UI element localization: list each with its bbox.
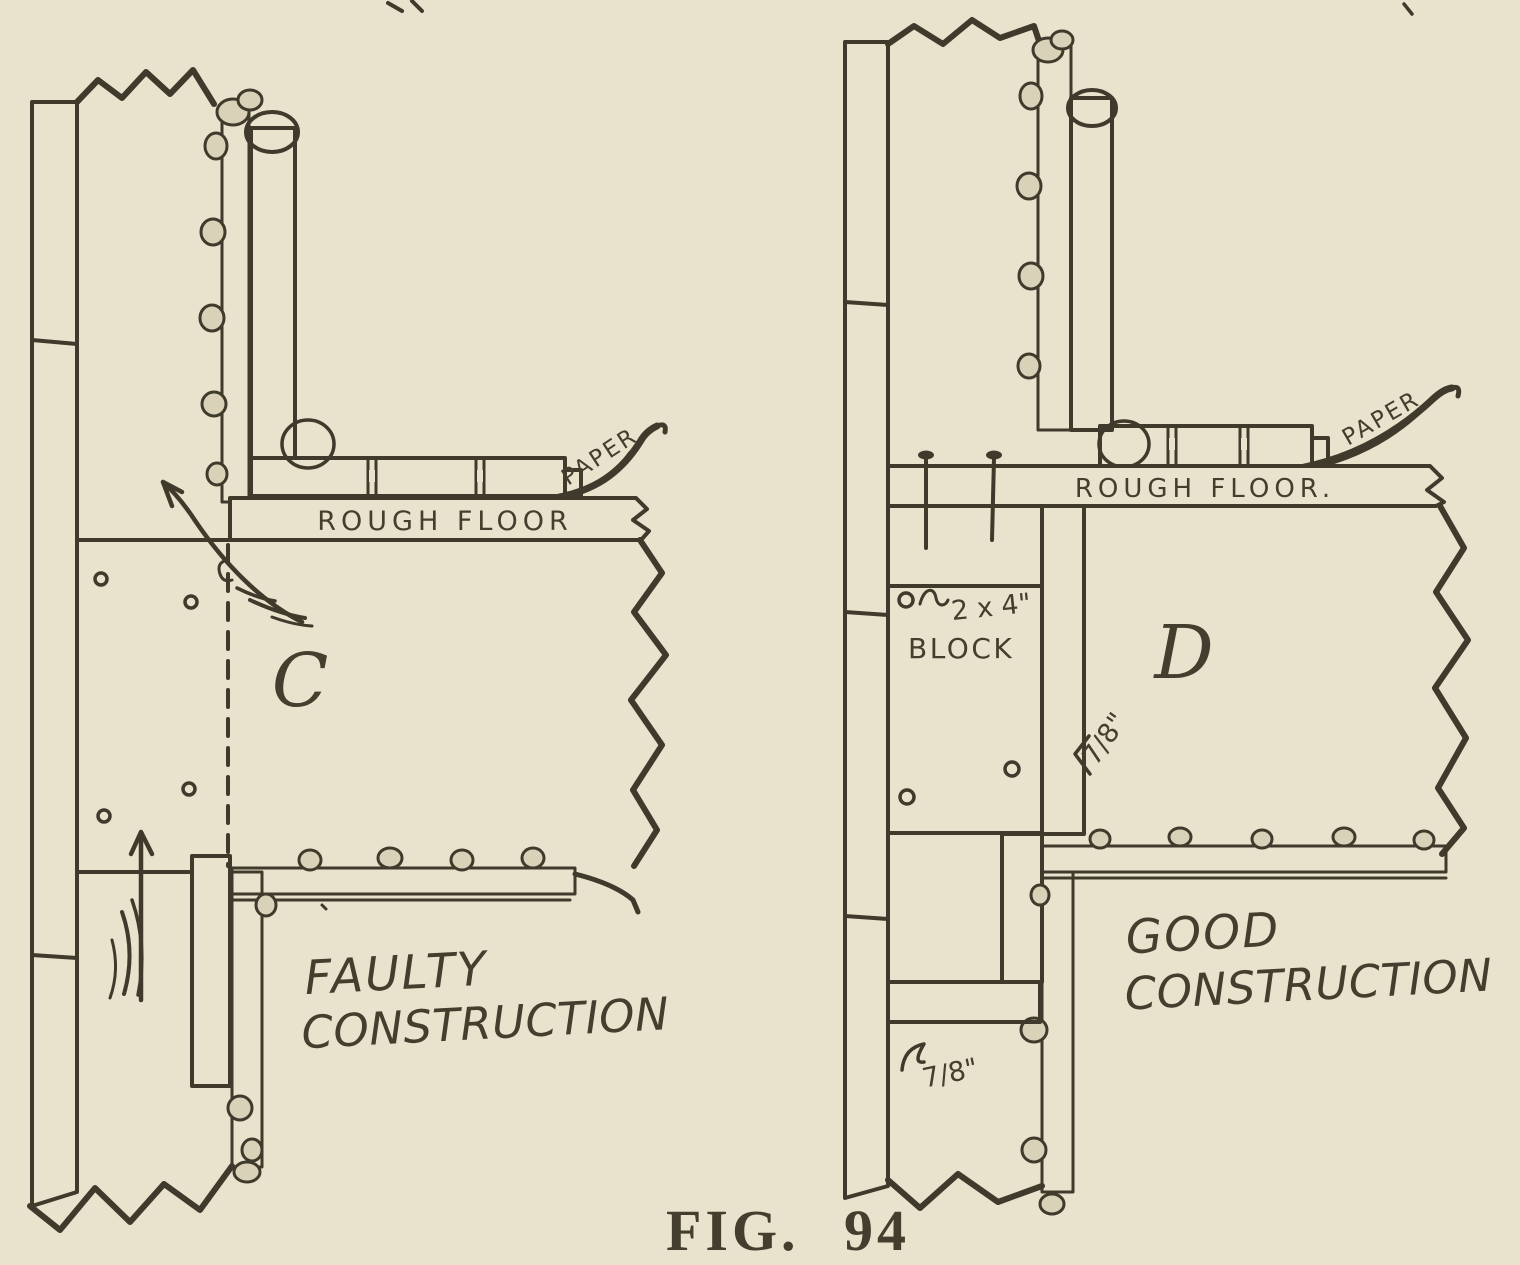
fire-stop-member — [888, 982, 1040, 1022]
lower-board — [1002, 834, 1042, 982]
right-caption-line1: GOOD — [1124, 902, 1281, 965]
break-line-bottom — [888, 1174, 1042, 1208]
joist-broken-end — [1435, 506, 1468, 854]
air-leak-arrow-lower — [110, 832, 152, 1000]
page-artifact-marks — [388, 1, 1412, 14]
stud — [1071, 98, 1112, 430]
finish-floor — [1100, 426, 1312, 466]
ledger-beam — [888, 506, 1042, 586]
finish-floor — [251, 458, 565, 496]
stud-top-blob — [1068, 90, 1116, 126]
svg-text:7/8": 7/8" — [920, 1053, 981, 1095]
figure-caption: FIG. 94 — [666, 1198, 910, 1263]
block-label: BLOCK — [908, 632, 1014, 665]
rough-floor-label: ROUGH FLOOR. — [1075, 474, 1335, 504]
rough-floor-label: ROUGH FLOOR — [317, 506, 572, 537]
siding-board — [32, 102, 77, 1206]
ceiling-lath-strip — [1042, 846, 1446, 872]
stud — [251, 128, 295, 458]
base-molding — [282, 420, 334, 468]
lath-strip — [222, 106, 249, 502]
joist-bottom-hook — [575, 874, 638, 912]
joist-broken-end — [631, 540, 666, 866]
right-caption: GOOD CONSTRUCTION — [1120, 891, 1493, 1020]
nail-heads — [95, 573, 197, 822]
lower-plaster-keys — [228, 894, 276, 1182]
panel-letter-c: C — [272, 638, 329, 724]
fig-94-illustration: PAPER ROUGH FLOOR — [0, 0, 1520, 1265]
plaster-dim-lower: 7/8" — [902, 1044, 981, 1095]
siding-joint — [845, 302, 888, 919]
panel-letter-d: D — [1152, 610, 1213, 696]
left-caption: FAULTY CONSTRUCTION — [297, 932, 670, 1059]
stud-top-blob — [246, 112, 298, 152]
break-line-top — [888, 20, 1040, 44]
left-panel-faulty: PAPER ROUGH FLOOR — [30, 70, 670, 1230]
floor-board-joints — [368, 458, 484, 496]
figure-page: PAPER ROUGH FLOOR — [0, 0, 1520, 1265]
break-line-top — [77, 70, 214, 104]
joist-header — [1042, 506, 1084, 834]
left-caption-line1: FAULTY — [303, 941, 490, 1006]
siding-board — [845, 42, 888, 1198]
furring-board — [192, 856, 230, 1086]
ceiling-lath-strip — [232, 868, 575, 894]
lower-lath-strip — [232, 872, 262, 1167]
right-panel-good: PAPER ROUGH FLOOR. 2 x 4" BLOCK — [845, 20, 1494, 1214]
floor-board-joints — [1168, 426, 1248, 466]
siding-joint — [32, 340, 77, 958]
plaster-keys — [1017, 31, 1073, 378]
speck — [322, 905, 326, 909]
